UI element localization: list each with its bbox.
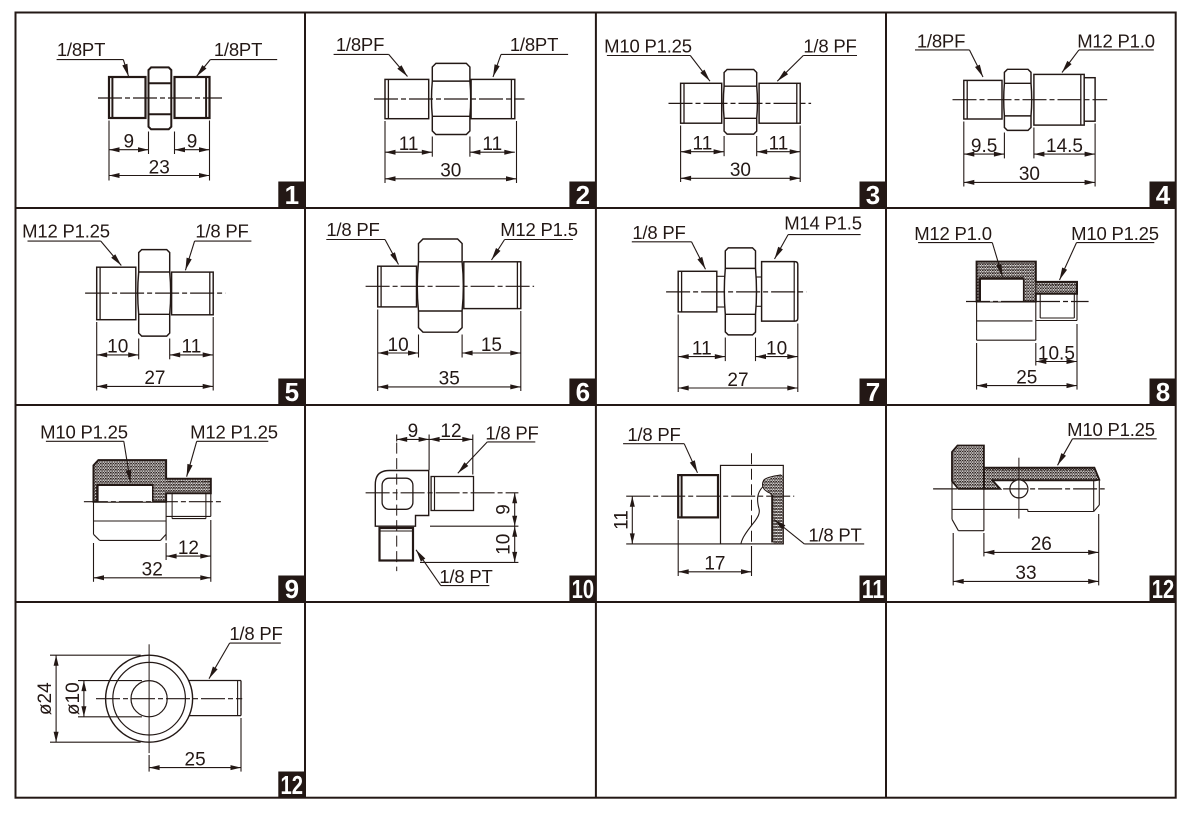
- svg-text:11: 11: [862, 574, 885, 604]
- svg-text:10: 10: [572, 574, 595, 604]
- svg-text:10: 10: [107, 337, 128, 358]
- svg-text:11: 11: [692, 338, 712, 359]
- svg-text:M12 P1.5: M12 P1.5: [500, 219, 578, 240]
- svg-text:9: 9: [187, 132, 198, 153]
- svg-text:11: 11: [482, 134, 502, 155]
- svg-text:1: 1: [285, 180, 299, 210]
- svg-text:5: 5: [285, 377, 299, 407]
- svg-text:17: 17: [704, 554, 725, 575]
- svg-text:1/8 PF: 1/8 PF: [627, 424, 680, 445]
- svg-text:33: 33: [1015, 563, 1036, 584]
- svg-text:4: 4: [1156, 180, 1171, 210]
- svg-text:12: 12: [178, 538, 199, 559]
- svg-text:M14 P1.5: M14 P1.5: [784, 213, 862, 234]
- svg-text:30: 30: [730, 160, 751, 181]
- svg-text:23: 23: [149, 157, 170, 178]
- svg-text:7: 7: [866, 377, 880, 407]
- svg-text:1/8 PF: 1/8 PF: [803, 36, 856, 57]
- svg-text:27: 27: [144, 368, 165, 389]
- svg-text:25: 25: [185, 749, 206, 770]
- svg-text:1/8 PF: 1/8 PF: [326, 219, 379, 240]
- svg-text:1/8PF: 1/8PF: [336, 34, 384, 55]
- svg-text:1/8 PF: 1/8 PF: [195, 221, 248, 242]
- svg-text:2: 2: [576, 180, 590, 210]
- svg-text:1/8 PF: 1/8 PF: [485, 423, 538, 444]
- svg-text:35: 35: [439, 369, 460, 390]
- svg-text:10: 10: [494, 534, 515, 555]
- svg-text:11: 11: [399, 134, 419, 155]
- svg-text:9: 9: [408, 421, 419, 442]
- svg-text:26: 26: [1031, 534, 1052, 555]
- svg-text:8: 8: [1156, 377, 1170, 407]
- svg-text:10.5: 10.5: [1038, 343, 1075, 364]
- svg-text:1/8PF: 1/8PF: [917, 31, 965, 52]
- svg-text:15: 15: [481, 335, 502, 356]
- svg-text:3: 3: [866, 180, 880, 210]
- svg-text:12: 12: [440, 421, 461, 442]
- svg-text:M10 P1.25: M10 P1.25: [604, 36, 692, 57]
- svg-text:12: 12: [281, 770, 304, 800]
- svg-text:M12 P1.25: M12 P1.25: [22, 221, 110, 242]
- svg-text:1/8PT: 1/8PT: [214, 39, 262, 60]
- svg-text:M12 P1.0: M12 P1.0: [914, 223, 992, 244]
- svg-text:9.5: 9.5: [971, 136, 997, 157]
- svg-text:M12 P1.0: M12 P1.0: [1077, 31, 1155, 52]
- svg-text:10: 10: [388, 335, 409, 356]
- svg-text:12: 12: [1152, 574, 1175, 604]
- svg-text:14.5: 14.5: [1046, 136, 1083, 157]
- svg-text:9: 9: [494, 504, 515, 515]
- svg-text:10: 10: [766, 338, 787, 359]
- svg-text:11: 11: [182, 337, 202, 358]
- svg-text:6: 6: [576, 377, 590, 407]
- svg-text:1/8PT: 1/8PT: [510, 34, 558, 55]
- svg-text:1/8PT: 1/8PT: [57, 39, 105, 60]
- svg-text:M10 P1.25: M10 P1.25: [40, 422, 128, 443]
- svg-text:11: 11: [769, 134, 789, 155]
- svg-text:27: 27: [727, 370, 748, 391]
- svg-text:32: 32: [142, 560, 163, 581]
- svg-text:11: 11: [611, 510, 632, 530]
- svg-text:30: 30: [440, 161, 461, 182]
- svg-text:1/8 PF: 1/8 PF: [229, 623, 282, 644]
- svg-text:1/8 PF: 1/8 PF: [632, 222, 685, 243]
- svg-text:ø24: ø24: [35, 682, 56, 715]
- svg-text:1/8 PT: 1/8 PT: [439, 566, 492, 587]
- svg-text:9: 9: [285, 574, 299, 604]
- svg-text:M12 P1.25: M12 P1.25: [190, 422, 278, 443]
- svg-text:25: 25: [1016, 367, 1037, 388]
- svg-text:M10 P1.25: M10 P1.25: [1067, 419, 1155, 440]
- svg-text:30: 30: [1019, 164, 1040, 185]
- svg-text:M10 P1.25: M10 P1.25: [1071, 223, 1159, 244]
- svg-text:9: 9: [124, 132, 135, 153]
- svg-text:1/8 PT: 1/8 PT: [808, 525, 861, 546]
- svg-text:ø10: ø10: [63, 682, 84, 715]
- svg-text:11: 11: [693, 134, 713, 155]
